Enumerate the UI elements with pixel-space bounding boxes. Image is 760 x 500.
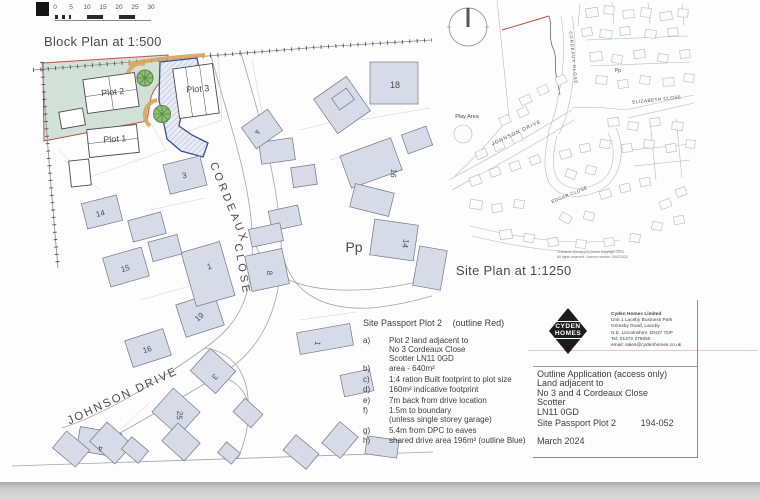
house-footprint — [322, 422, 358, 459]
document-number: 194-052 — [641, 418, 674, 428]
logo-rule — [553, 338, 583, 339]
house-number-label: 25 — [175, 410, 185, 420]
sp-house-footprint — [619, 183, 631, 193]
site-passport-item: d)160m² indicative footprint — [363, 386, 529, 395]
item-letter: g) — [363, 427, 389, 436]
sp-house-footprint — [658, 54, 669, 63]
house-footprint — [90, 422, 133, 464]
item-text: area - 640m² — [389, 365, 529, 374]
sp-house-footprint — [623, 10, 635, 19]
logo-text: CYDEN HOMES — [545, 320, 591, 340]
house-footprint — [181, 242, 235, 307]
sp-house-footprint — [547, 237, 558, 246]
site-passport-items: a)Plot 2 land adjacent to No 3 Cordeaux … — [363, 337, 529, 446]
sp-house-footprint — [519, 94, 532, 106]
site-passport-item: h)shared drive area 196m² (outline Blue) — [363, 437, 529, 446]
street-label-cordeaux: CORDEAUX — [207, 161, 250, 246]
sp-house-footprint — [618, 79, 629, 88]
sp-house-footprint — [673, 215, 684, 225]
application-description: Outline Application (access only)Land ad… — [537, 370, 667, 417]
sp-house-footprint — [489, 167, 501, 178]
site-passport-item: f)1.5m to boundary (unless single storey… — [363, 407, 529, 425]
item-letter: c) — [363, 376, 389, 385]
sp-house-footprint — [639, 177, 650, 187]
house-footprint — [248, 223, 283, 247]
site-passport-title: Site Passport Plot 2 — [363, 318, 442, 328]
item-letter: b) — [363, 365, 389, 374]
os-copyright: Ordnance Survey (C) Crown Copyright 2024… — [557, 250, 628, 259]
os-copyright-line: All rights reserved. Licence number 1000… — [557, 255, 628, 259]
sp-house-footprint — [633, 49, 645, 58]
sp-house-footprint — [659, 198, 672, 209]
sp-house-footprint — [475, 148, 488, 160]
sp-house-footprint — [514, 199, 525, 208]
sp-house-footprint — [604, 237, 615, 246]
sp-house-footprint — [517, 106, 529, 117]
house-footprint — [291, 164, 318, 187]
site-passport-heading: Site Passport Plot 2 (outline Red) — [363, 318, 529, 328]
house-footprint — [233, 398, 263, 427]
sp-house-footprint — [622, 143, 633, 152]
sp-house-footprint — [644, 29, 656, 38]
sp-house-footprint — [600, 29, 613, 38]
sp-pp-label: Pp — [615, 68, 621, 74]
cyden-homes-logo: CYDEN HOMES — [545, 306, 591, 356]
os-copyright-line: Ordnance Survey (C) Crown Copyright 2024… — [557, 250, 625, 254]
sp-house-footprint — [628, 122, 639, 131]
item-text: 5.4m from DPC to eaves — [389, 427, 529, 436]
sp-house-footprint — [686, 140, 696, 149]
plot-1-label: Plot 1 — [103, 133, 127, 145]
sp-house-footprint — [641, 8, 652, 18]
sp-house-footprint — [651, 221, 662, 231]
item-letter: a) — [363, 337, 389, 364]
sp-house-footprint — [672, 121, 684, 130]
sp-house-footprint — [608, 117, 620, 126]
house-footprint — [218, 442, 241, 464]
sp-house-footprint — [678, 9, 688, 18]
application-line: LN11 0GD — [537, 408, 667, 417]
sp-street-label-johnson-drive: JOHNSON DRIVE — [491, 119, 543, 147]
document-title-row: Site Passport Plot 2 194-052 — [537, 418, 674, 428]
house-footprint — [297, 323, 354, 354]
title-block: CYDEN HOMES Cyden Homes LimitedUnit 1 La… — [533, 300, 698, 458]
item-text: 1.5m to boundary (unless single storey g… — [389, 407, 529, 425]
sp-house-footprint — [499, 114, 511, 125]
company-details: Cyden Homes LimitedUnit 1 Laceby Busines… — [611, 312, 691, 349]
sp-house-footprint — [469, 199, 482, 210]
house-footprint — [283, 435, 319, 470]
item-letter: h) — [363, 437, 389, 446]
site-passport-item: a)Plot 2 land adjacent to No 3 Cordeaux … — [363, 337, 529, 364]
sp-house-footprint — [675, 187, 687, 198]
sp-house-footprint — [583, 211, 595, 221]
company-detail-line: email: sales@cydenhomes.co.uk — [611, 343, 691, 349]
garage-building — [69, 159, 92, 187]
house-footprint — [190, 348, 235, 393]
site-passport-item: c)1:4 ration Built footprint to plot siz… — [363, 376, 529, 385]
sp-house-footprint — [576, 239, 587, 248]
house-footprint — [401, 126, 432, 154]
house-footprint — [128, 212, 167, 242]
house-footprint — [413, 246, 448, 290]
site-passport-item: b)area - 640m² — [363, 365, 529, 374]
sp-house-footprint — [644, 140, 655, 149]
sp-house-footprint — [668, 28, 679, 37]
item-text: 1:4 ration Built footprint to plot size — [389, 376, 529, 385]
sp-street-label-edgar-close: EDGAR CLOSE — [551, 185, 589, 204]
sp-house-footprint — [559, 212, 573, 224]
sp-house-footprint — [537, 84, 549, 95]
logo-line1: CYDEN — [555, 323, 580, 330]
house-footprint — [162, 423, 200, 461]
sp-house-footprint — [620, 27, 631, 36]
house-number-label: 18 — [390, 80, 400, 90]
tree-icon — [154, 106, 171, 123]
sp-house-footprint — [509, 161, 521, 172]
sp-house-footprint — [523, 233, 534, 242]
sp-street-label-cordeaux-close: CORDEAUX CLOSE — [568, 31, 579, 84]
plot-3-label: Plot 3 — [186, 83, 210, 95]
garage-building — [59, 108, 86, 129]
title-block-divider — [533, 366, 697, 367]
site-passport-item: e)7m back from drive location — [363, 397, 529, 406]
sp-red-site-outline — [502, 16, 549, 30]
sp-house-footprint — [599, 139, 610, 148]
sp-house-footprint — [529, 155, 541, 166]
sp-house-footprint — [596, 76, 608, 85]
item-letter: d) — [363, 386, 389, 395]
sp-house-footprint — [565, 169, 577, 180]
paper-edge — [0, 482, 760, 500]
sp-house-footprint — [585, 165, 597, 175]
sp-house-footprint — [640, 75, 651, 84]
sp-house-footprint — [604, 6, 615, 15]
sp-house-footprint — [581, 27, 592, 37]
site-plan-houses — [469, 6, 696, 249]
sp-house-footprint — [559, 149, 572, 160]
sp-house-footprint — [663, 78, 674, 87]
scanned-planning-document: 051015202530 Block Plan at 1:500 Site Pl… — [0, 0, 760, 500]
site-plan-map: CORDEAUX CLOSEELIZABETH CLOSEJOHNSON DRI… — [447, 0, 695, 259]
sp-house-footprint — [660, 11, 673, 20]
logo-rule — [553, 321, 583, 322]
sp-house-footprint — [579, 143, 590, 153]
site-passport-suffix: (outline Red) — [453, 318, 505, 328]
item-text: 160m² indicative footprint — [389, 386, 529, 395]
logo-line2: HOMES — [555, 330, 581, 337]
item-letter: f) — [363, 407, 389, 425]
sp-house-footprint — [590, 51, 603, 61]
house-footprint — [148, 234, 182, 261]
site-passport-notes: Site Passport Plot 2 (outline Red) a)Plo… — [363, 318, 529, 447]
north-compass-icon — [447, 8, 489, 46]
house-footprint — [340, 138, 402, 188]
sp-play-area-label: Play Area — [455, 114, 479, 120]
item-text: shared drive area 196m² (outline Blue) — [389, 437, 529, 446]
sp-house-footprint — [612, 54, 623, 63]
sp-house-footprint — [665, 143, 676, 152]
sp-house-footprint — [500, 229, 513, 239]
sp-house-footprint — [629, 233, 640, 242]
document-date: March 2024 — [537, 436, 585, 446]
site-passport-item: g)5.4m from DPC to eaves — [363, 427, 529, 436]
sp-house-footprint — [469, 174, 482, 186]
item-text: 7m back from drive location — [389, 397, 529, 406]
tree-icon — [137, 70, 153, 86]
sp-house-footprint — [680, 50, 691, 59]
document-title: Site Passport Plot 2 — [537, 418, 616, 428]
sp-house-footprint — [650, 118, 661, 127]
pp-label: Pp — [345, 239, 362, 255]
house-footprint — [350, 184, 395, 217]
sp-house-footprint — [585, 7, 598, 18]
item-text: Plot 2 land adjacent to No 3 Cordeaux Cl… — [389, 337, 529, 364]
sp-house-footprint — [491, 203, 502, 212]
sp-house-footprint — [684, 74, 695, 83]
house-number-label: 16 — [389, 168, 399, 178]
item-letter: e) — [363, 397, 389, 406]
